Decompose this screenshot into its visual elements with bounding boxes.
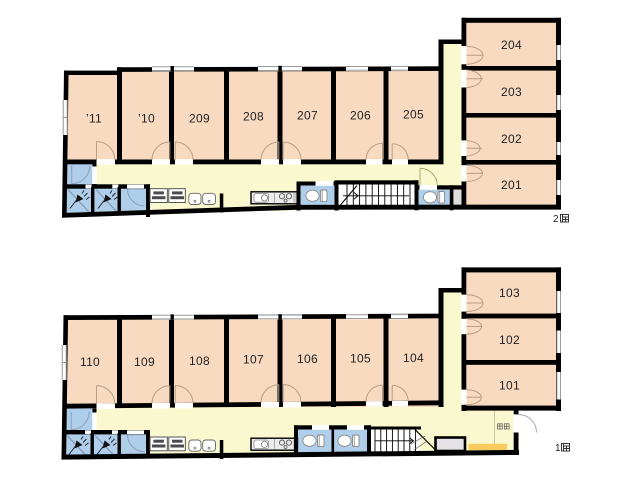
svg-text:209: 209 [189, 112, 210, 126]
svg-text:108: 108 [189, 354, 210, 368]
svg-text:2: 2 [553, 214, 559, 225]
svg-text:109: 109 [134, 355, 155, 369]
svg-text:110: 110 [80, 355, 100, 369]
svg-text:202: 202 [501, 132, 522, 146]
svg-text:107: 107 [243, 353, 264, 367]
svg-text:’11: ’11 [86, 112, 102, 126]
svg-text:207: 207 [297, 109, 318, 123]
svg-text:201: 201 [501, 178, 522, 192]
svg-text:204: 204 [501, 38, 522, 52]
svg-text:102: 102 [499, 333, 520, 347]
svg-text:101: 101 [499, 379, 520, 393]
svg-text:206: 206 [350, 109, 371, 123]
svg-text:106: 106 [297, 352, 318, 366]
svg-text:1: 1 [555, 443, 561, 454]
svg-text:208: 208 [243, 110, 264, 124]
svg-text:’10: ’10 [138, 112, 155, 126]
svg-text:103: 103 [499, 286, 520, 300]
svg-text:105: 105 [350, 352, 371, 366]
svg-text:203: 203 [501, 85, 522, 99]
svg-text:205: 205 [403, 108, 424, 122]
svg-text:104: 104 [403, 351, 424, 365]
